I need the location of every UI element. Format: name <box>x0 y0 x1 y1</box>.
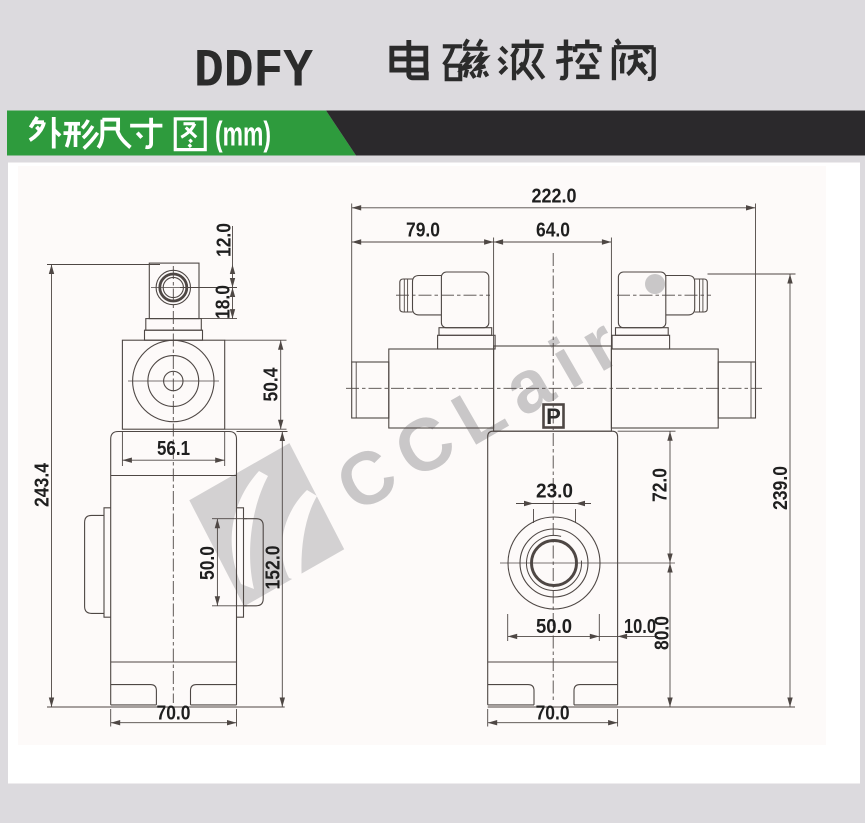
svg-text:DDFY: DDFY <box>194 42 314 103</box>
svg-text:50.0: 50.0 <box>197 546 219 580</box>
svg-text:18.0: 18.0 <box>213 285 235 319</box>
svg-text:10.0: 10.0 <box>624 616 656 638</box>
svg-text:239.0: 239.0 <box>770 466 792 510</box>
svg-text:56.1: 56.1 <box>157 438 190 460</box>
svg-text:72.0: 72.0 <box>650 468 672 502</box>
svg-text:(mm): (mm) <box>215 116 271 154</box>
svg-text:70.0: 70.0 <box>157 703 191 725</box>
svg-text:P: P <box>546 404 561 429</box>
svg-text:152.0: 152.0 <box>263 546 285 590</box>
svg-text:12.0: 12.0 <box>214 223 236 257</box>
svg-text:222.0: 222.0 <box>532 186 577 208</box>
svg-text:64.0: 64.0 <box>536 220 570 242</box>
svg-text:243.4: 243.4 <box>32 462 54 507</box>
svg-text:23.0: 23.0 <box>536 481 573 503</box>
svg-text:70.0: 70.0 <box>536 703 570 725</box>
svg-text:50.4: 50.4 <box>261 367 283 402</box>
svg-text:50.0: 50.0 <box>536 616 572 638</box>
svg-text:79.0: 79.0 <box>406 220 440 242</box>
